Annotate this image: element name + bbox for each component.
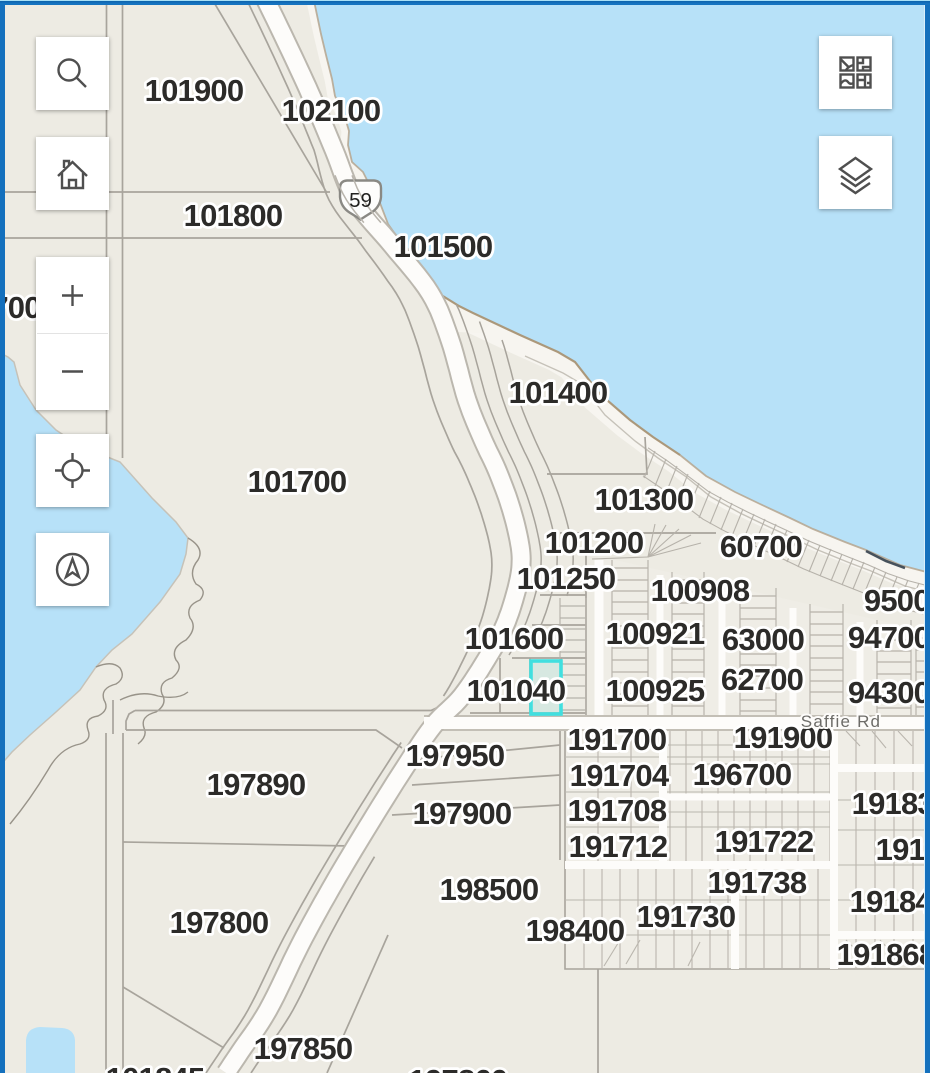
svg-text:197890: 197890	[207, 767, 306, 802]
svg-text:101400: 101400	[509, 375, 608, 410]
svg-text:191845: 191845	[876, 832, 930, 867]
svg-text:700: 700	[0, 290, 41, 325]
svg-text:101200: 101200	[545, 525, 644, 560]
svg-text:101040: 101040	[467, 673, 566, 708]
svg-text:100921: 100921	[606, 616, 705, 651]
svg-text:101900: 101900	[145, 73, 244, 108]
svg-text:102100: 102100	[282, 93, 381, 128]
svg-text:95000: 95000	[864, 583, 930, 618]
svg-text:191868: 191868	[837, 937, 930, 972]
svg-text:101700: 101700	[248, 464, 347, 499]
svg-text:198500: 198500	[440, 872, 539, 907]
svg-text:191831: 191831	[852, 786, 930, 821]
svg-text:197860: 197860	[409, 1063, 508, 1073]
svg-text:101800: 101800	[184, 198, 283, 233]
svg-text:191730: 191730	[637, 899, 736, 934]
svg-text:101250: 101250	[517, 561, 616, 596]
svg-text:191738: 191738	[708, 865, 807, 900]
svg-text:191708: 191708	[568, 793, 667, 828]
svg-text:101600: 101600	[465, 621, 564, 656]
svg-text:101845: 101845	[106, 1061, 205, 1073]
svg-text:197850: 197850	[254, 1031, 353, 1066]
svg-text:197950: 197950	[406, 738, 505, 773]
svg-text:100925: 100925	[606, 673, 705, 708]
svg-text:196700: 196700	[693, 757, 792, 792]
svg-text:197900: 197900	[413, 796, 512, 831]
svg-text:94300: 94300	[848, 675, 930, 710]
svg-text:63000: 63000	[722, 622, 804, 657]
svg-text:191704: 191704	[570, 758, 670, 793]
svg-text:191700: 191700	[568, 722, 667, 757]
svg-text:94700: 94700	[848, 620, 930, 655]
svg-text:62700: 62700	[721, 662, 803, 697]
svg-text:191722: 191722	[715, 824, 814, 859]
svg-text:60700: 60700	[720, 529, 802, 564]
svg-text:Saffie Rd: Saffie Rd	[801, 712, 881, 731]
svg-text:101500: 101500	[394, 229, 493, 264]
svg-text:197800: 197800	[170, 905, 269, 940]
svg-text:191712: 191712	[569, 829, 668, 864]
svg-text:59: 59	[349, 189, 372, 212]
svg-text:100908: 100908	[651, 573, 750, 608]
svg-text:101300: 101300	[595, 482, 694, 517]
svg-text:191840: 191840	[850, 884, 930, 919]
svg-text:198400: 198400	[526, 913, 625, 948]
